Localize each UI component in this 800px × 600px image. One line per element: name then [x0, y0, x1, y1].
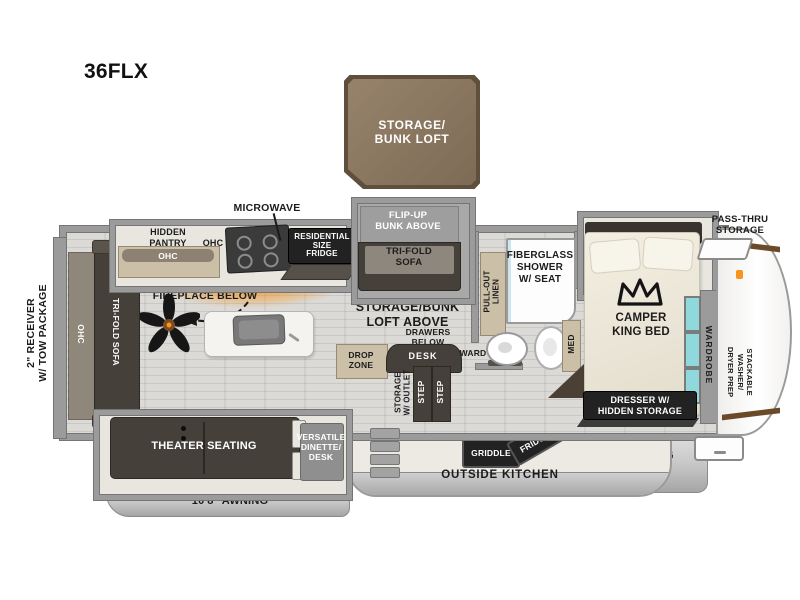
pantry-ohc-label: OHC — [122, 251, 214, 261]
island-sink — [232, 314, 285, 346]
drop-zone-label: DROP ZONE — [338, 350, 384, 370]
entry-door-handle — [714, 451, 726, 454]
loft-above-label: STORAGE/BUNK LOFT ABOVE — [335, 300, 480, 330]
pull-out-linen-label: PULL-OUT LINEN — [483, 261, 502, 321]
camper-king-bed-label: CAMPER KING BED — [596, 312, 686, 339]
stove-burner-1 — [236, 235, 252, 251]
bedroom-window-2 — [684, 332, 701, 368]
model-title: 36FLX — [84, 60, 204, 85]
toilet — [486, 332, 528, 366]
entry-step-4 — [370, 467, 400, 478]
microwave-label: MICROWAVE — [212, 202, 322, 214]
cap-light — [736, 270, 743, 279]
bunk-sofa-label: TRI-FOLD SOFA — [363, 246, 455, 268]
bedroom-window-1 — [684, 296, 701, 332]
theater-seating-label: THEATER SEATING — [112, 440, 296, 453]
entry-step-2 — [370, 441, 400, 452]
floorplan-canvas: 36FLX STORAGE/ BUNK LOFT 10'8" AWNING 21… — [0, 0, 800, 600]
residential-fridge: RESIDENTIAL SIZE FRIDGE — [288, 228, 356, 264]
wardrobe-label: WARDROBE — [704, 299, 714, 411]
med-label: MED — [566, 328, 576, 360]
dresser-label-box: DRESSER W/ HIDDEN STORAGE — [583, 391, 697, 420]
theater-cupholder-1 — [181, 426, 186, 431]
stove-burner-3 — [237, 253, 253, 269]
rear-wall — [54, 238, 66, 438]
step-2-label: STEP — [435, 372, 445, 412]
washer-prep-label: STACKABLE WASHER/ DRYER PREP — [726, 332, 754, 412]
ceiling-fan — [138, 294, 200, 356]
step-1-label: STEP — [416, 372, 426, 412]
bath-sink-basin — [543, 338, 557, 356]
flip-up-bunk-label: FLIP-UP BUNK ABOVE — [358, 210, 458, 232]
fridge-doors — [280, 264, 359, 280]
toilet-bowl — [498, 342, 512, 353]
bed-pillow-left — [589, 238, 642, 274]
receiver-label: 2" RECEIVER W/ TOW PACKAGE — [25, 257, 51, 409]
entry-door — [694, 436, 744, 461]
bunk-loft-box: STORAGE/ BUNK LOFT — [344, 75, 480, 189]
stove — [225, 224, 291, 273]
ward-label: WARD — [456, 348, 490, 358]
shower-label: FIBERGLASS SHOWER W/ SEAT — [504, 250, 576, 285]
storage-outlet-label: STORAGE W/ OUTLET — [394, 361, 413, 423]
rear-ohc-label: OHC — [76, 314, 86, 354]
residential-fridge-label: RESIDENTIAL SIZE FRIDGE — [294, 233, 350, 259]
pass-thru-hatch — [696, 238, 753, 260]
stove-burner-2 — [262, 234, 278, 250]
entry-step-1 — [370, 428, 400, 439]
dinette-label: VERSATILE DINETTE/ DESK — [296, 432, 346, 462]
island-sink-basin — [239, 319, 280, 339]
rear-sofa-label: TRI-FOLD SOFA — [111, 276, 121, 388]
bunk-loft-label: STORAGE/ BUNK LOFT — [375, 118, 450, 146]
pass-thru-label: PASS-THRU STORAGE — [692, 214, 788, 236]
kitchen-ohc-label: OHC — [198, 238, 228, 249]
stove-burner-4 — [263, 252, 279, 268]
crown-icon — [613, 276, 667, 310]
bed-pillow-right — [642, 236, 694, 271]
griddle-label: GRIDDLE — [471, 448, 511, 458]
dresser-label: DRESSER W/ HIDDEN STORAGE — [598, 395, 682, 416]
desk-label: DESK — [395, 351, 451, 362]
outside-kitchen-label: OUTSIDE KITCHEN — [400, 469, 600, 483]
bunk-loft-box-inner: STORAGE/ BUNK LOFT — [348, 79, 476, 185]
entry-step-3 — [370, 454, 400, 465]
